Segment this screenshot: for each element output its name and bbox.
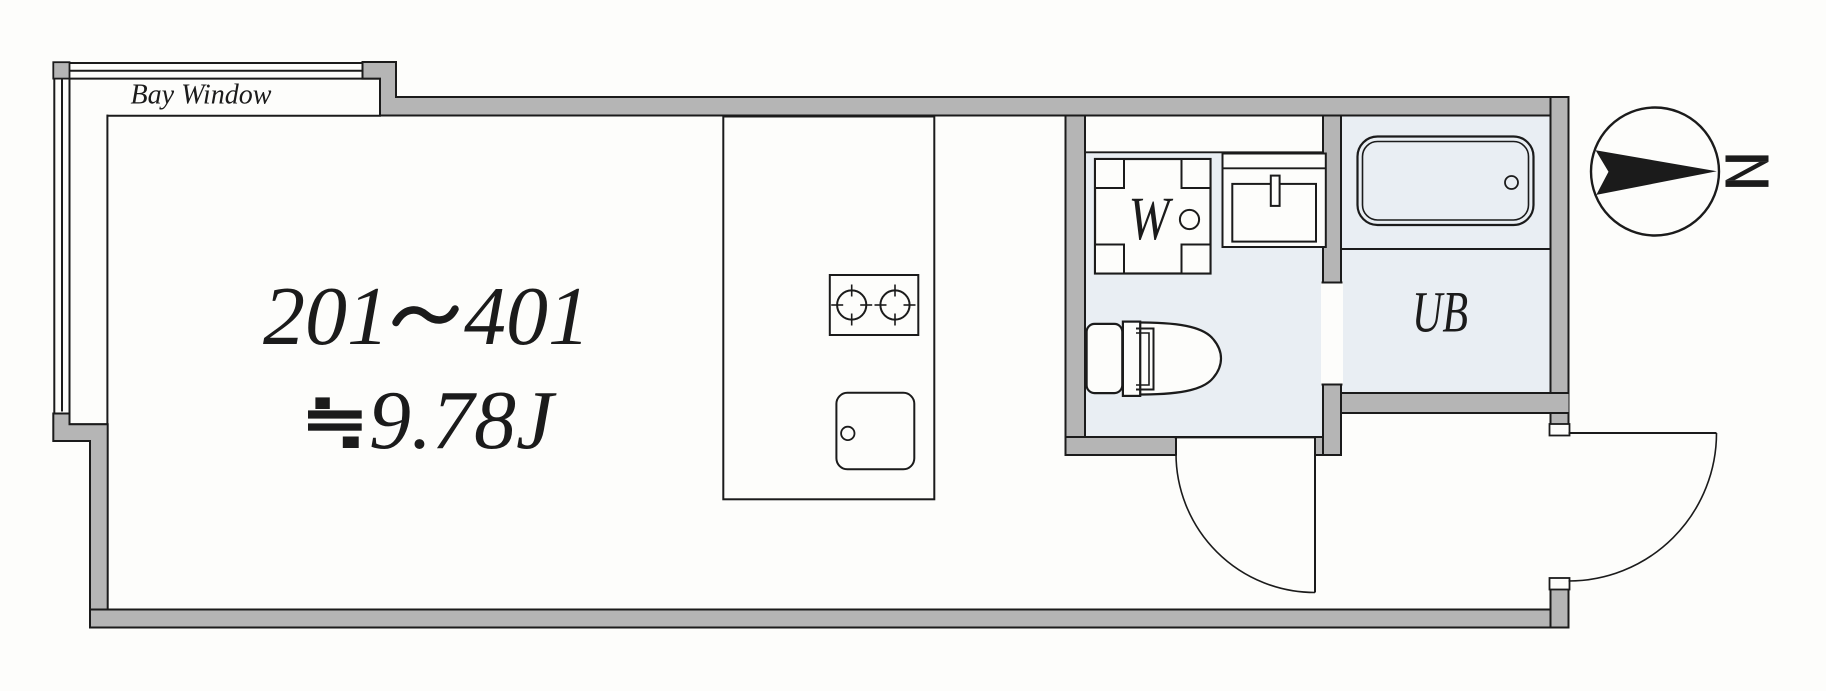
- svg-text:9.78J: 9.78J: [369, 374, 557, 467]
- svg-text:201: 201: [263, 270, 389, 363]
- svg-text:401: 401: [464, 270, 590, 363]
- svg-text:UB: UB: [1412, 280, 1468, 345]
- svg-text:Bay Window: Bay Window: [131, 80, 272, 111]
- svg-text:W: W: [1129, 186, 1174, 253]
